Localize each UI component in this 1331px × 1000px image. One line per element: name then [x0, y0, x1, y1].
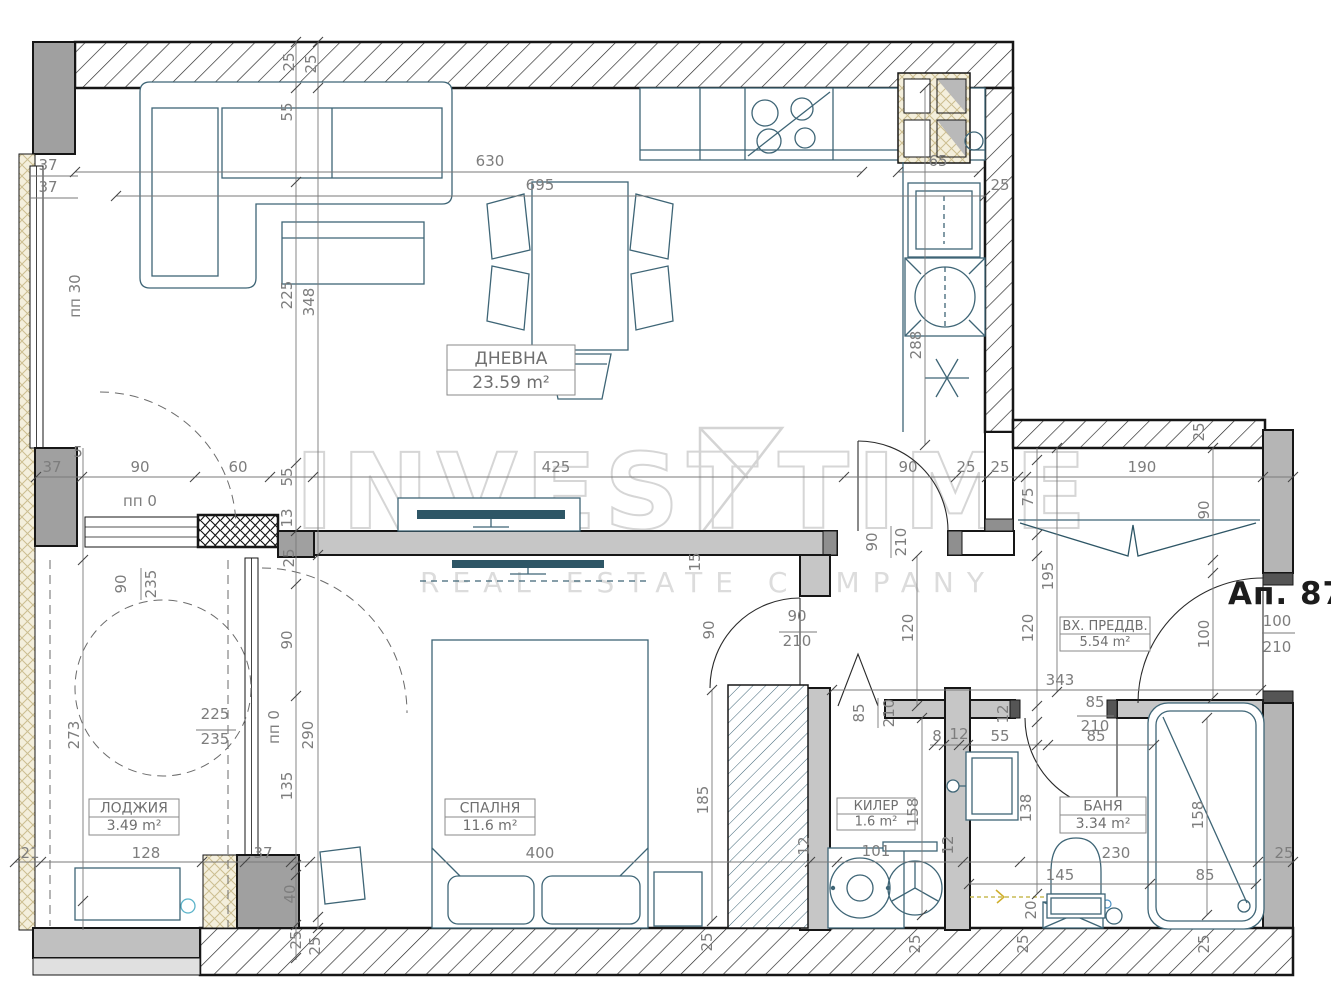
dimension-label: 135: [278, 772, 296, 801]
dimension-label: 425: [542, 458, 571, 476]
dimension-label: 90: [898, 458, 917, 476]
dimension-label: 25: [990, 176, 1009, 194]
wall-kitchen-right: [985, 88, 1013, 432]
dimension-label: 85: [850, 703, 868, 722]
shaft-block: [898, 73, 970, 163]
dimension-label: 37: [38, 178, 57, 196]
dining-chair: [487, 266, 529, 330]
wall-column-crosshatch: [198, 515, 278, 547]
dimension-label: 85: [1195, 866, 1214, 884]
dimension-label: 21: [20, 844, 39, 862]
dimension-label: 12: [994, 704, 1012, 723]
dimension-label: 55: [990, 727, 1009, 745]
dimension-label: 25: [698, 932, 716, 951]
dimension-label: 288: [907, 331, 925, 360]
room-label: БАНЯ3.34 m²: [1060, 797, 1146, 833]
bath-sink: [966, 752, 1018, 820]
dimension-label: 25: [280, 52, 298, 71]
dimension-label: 190: [1128, 458, 1157, 476]
dimension-label: 273: [65, 721, 83, 750]
dimension-label: 65: [928, 152, 947, 170]
wall-hall-top: [1013, 420, 1265, 448]
kitchen-sink: [905, 258, 985, 336]
dimension-label: 348: [300, 288, 318, 317]
wardrobe-bedroom: [728, 685, 808, 928]
dimension-label: 25: [280, 548, 298, 567]
dimension-label: 230: [1102, 844, 1131, 862]
coffee-table: [282, 222, 424, 284]
dimension-label: 12: [795, 836, 813, 855]
wall-right-upper: [1263, 430, 1293, 573]
dimension-label: 25: [302, 54, 320, 73]
fridge-snowflake-icon: [925, 359, 969, 397]
loggia-sliding-door: [85, 517, 198, 547]
dimension-label: 128: [132, 844, 161, 862]
dimension-label: 145: [1046, 866, 1075, 884]
dimension-label: 290: [299, 721, 317, 750]
room-label: СПАЛНЯ11.6 m²: [445, 799, 535, 835]
wall-top: [75, 42, 1013, 88]
loggia-door-swing-dashed: [100, 392, 236, 528]
dimension-label: 120: [1019, 614, 1037, 643]
dimension-label: 195: [1039, 562, 1057, 591]
dimension-label: 25: [287, 930, 305, 949]
dimension-label: 100: [1263, 612, 1292, 630]
kitchen: [640, 73, 985, 432]
dining-chair: [631, 266, 673, 330]
dimension-label: 55: [278, 467, 296, 486]
dimension-label: 25: [1014, 934, 1032, 953]
dimension-label: 90: [700, 620, 718, 639]
entry-door-jamb-bottom: [1263, 691, 1293, 703]
dimension-label: 400: [526, 844, 555, 862]
room-name: ВХ. ПРЕДДВ.: [1062, 619, 1147, 634]
dimension-label: 25: [1190, 422, 1208, 441]
dining-chair: [630, 194, 673, 259]
dimension-label: 37: [253, 844, 272, 862]
room-area: 3.49 m²: [107, 818, 162, 834]
dimension-label: 40: [281, 884, 299, 903]
dimension-label: 37: [42, 458, 61, 476]
faucet-icon: [947, 780, 959, 792]
wall-kitchen-right-lower: [985, 432, 1013, 531]
dimension-label: 25: [306, 936, 324, 955]
dimension-label: 100: [1195, 620, 1213, 649]
wall-living-bedroom: [314, 531, 837, 555]
room-label: ВХ. ПРЕДДВ.5.54 m²: [1060, 617, 1150, 651]
dimension-label: пп 30: [66, 274, 84, 317]
dimension-label: 235: [201, 730, 230, 748]
dimension-label: 90: [278, 630, 296, 649]
dimension-label: 20: [1022, 900, 1040, 919]
dimension-label: 8: [932, 727, 942, 745]
dimension-label: 630: [476, 152, 505, 170]
dimension-label: 343: [1046, 671, 1075, 689]
dimension-label: 90: [787, 607, 806, 625]
wall-right-lower: [1263, 703, 1293, 930]
dimension-label: 12: [939, 835, 957, 854]
wall-pier-topleft: [33, 42, 75, 154]
dimension-label: 25: [956, 458, 975, 476]
dimension-label: 225: [201, 705, 230, 723]
dimension-label: 235: [142, 570, 160, 599]
room-area: 23.59 m²: [472, 373, 549, 393]
dimension-label: 138: [1017, 794, 1035, 823]
wall-bottom: [200, 928, 1293, 975]
apartment-number: Ап. 87: [1228, 576, 1331, 612]
room-name: БАНЯ: [1083, 799, 1122, 815]
dimension-label: 90: [863, 532, 881, 551]
room-label: ЛОДЖИЯ3.49 m²: [89, 799, 179, 835]
tv-bedroom: [452, 560, 604, 568]
dimension-label: 210: [880, 699, 898, 728]
oven: [908, 183, 980, 257]
dining-chair: [487, 194, 530, 259]
dimension-label: 90: [1195, 500, 1213, 519]
room-area: 5.54 m²: [1080, 635, 1131, 650]
floor-plan-drawing: INVEST TIME REAL ESTATE COMPANY: [0, 0, 1331, 1000]
floor-plan-page: INVEST TIME REAL ESTATE COMPANY: [0, 0, 1331, 1000]
marker-circle-icon: [181, 899, 195, 913]
dimension-label: 210: [892, 528, 910, 557]
room-area: 3.34 m²: [1076, 816, 1131, 832]
dimension-label: 75: [1019, 487, 1037, 506]
dimension-label: пп 0: [123, 492, 157, 510]
closet-bifold-door: [838, 654, 878, 706]
room-name: КИЛЕР: [854, 799, 899, 814]
dimension-label: 12: [949, 725, 968, 743]
loggia-bench: [75, 868, 180, 920]
dimension-label: 158: [904, 798, 922, 827]
watermark-line2: REAL ESTATE COMPANY: [420, 566, 997, 599]
loggia-dashed-circle: [75, 600, 251, 776]
dimension-label: 55: [278, 102, 296, 121]
dimension-label: 25: [990, 458, 1009, 476]
dining-table: [532, 182, 628, 350]
dimension-label: 185: [694, 786, 712, 815]
dimension-label: 25: [1274, 844, 1293, 862]
dimension-label: 37: [38, 156, 57, 174]
stool: [320, 847, 365, 904]
dimension-label: 85: [1086, 727, 1105, 745]
wall-bedroom-hall-top: [800, 555, 830, 596]
dimension-label: 5: [73, 443, 83, 461]
dimension-label: 85: [1085, 693, 1104, 711]
dimension-label: 120: [899, 614, 917, 643]
dimension-label: 15: [686, 552, 704, 571]
dimension-label: 90: [112, 574, 130, 593]
dimension-label: 695: [526, 176, 555, 194]
dimension-label: пп 0: [265, 710, 283, 744]
dimension-label: 210: [1263, 638, 1292, 656]
dimension-label: 13: [278, 508, 296, 527]
room-name: ЛОДЖИЯ: [100, 801, 168, 817]
dimension-label: 210: [783, 632, 812, 650]
bed: [432, 640, 648, 928]
room-area: 1.6 m²: [855, 815, 898, 830]
tv-living: [417, 510, 565, 519]
dimension-label: 25: [1195, 934, 1213, 953]
dimension-label: 225: [278, 281, 296, 310]
dimension-label: 25: [906, 934, 924, 953]
dimension-label: 158: [1189, 801, 1207, 830]
nightstand: [654, 872, 702, 926]
room-name: СПАЛНЯ: [460, 801, 521, 817]
loggia-slab: [33, 928, 200, 958]
room-area: 11.6 m²: [463, 818, 518, 834]
bedroom-furniture: [320, 560, 808, 928]
room-name: ДНЕВНА: [475, 349, 548, 369]
dimension-label: 90: [130, 458, 149, 476]
room-label: ДНЕВНА23.59 m²: [447, 345, 575, 395]
dimension-label: 101: [862, 842, 891, 860]
dimension-label: 60: [228, 458, 247, 476]
